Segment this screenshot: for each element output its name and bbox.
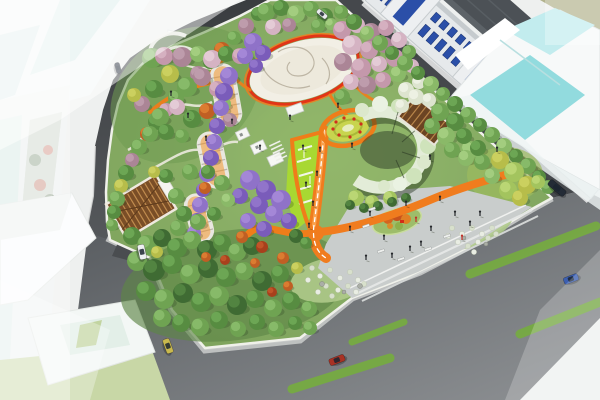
park-masterplan-rendering — [0, 0, 600, 400]
island-sign — [400, 220, 404, 223]
rendering-stage — [0, 0, 600, 400]
